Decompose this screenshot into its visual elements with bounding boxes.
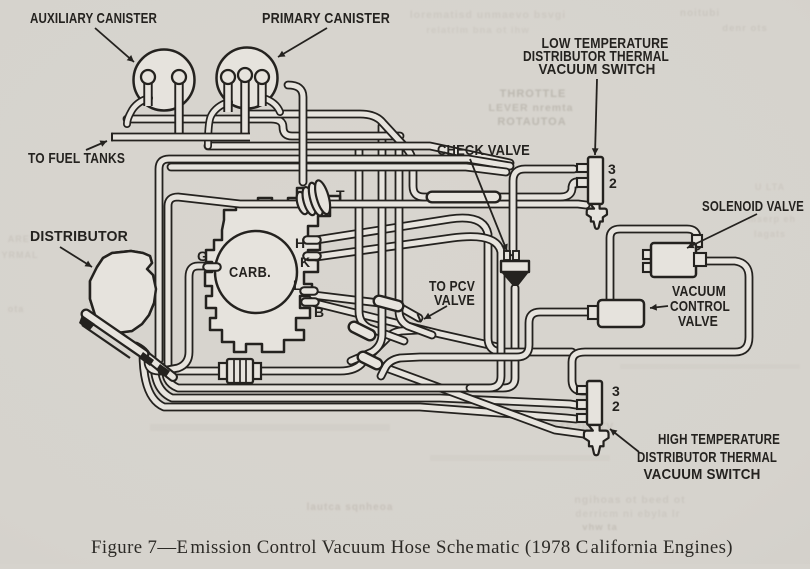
svg-text:HIGH TEMPERATURE: HIGH TEMPERATURE bbox=[658, 431, 780, 448]
svg-text:SOLENOID VALVE: SOLENOID VALVE bbox=[702, 198, 804, 215]
svg-text:VACUUM SWITCH: VACUUM SWITCH bbox=[539, 61, 656, 78]
svg-text:lagats: lagats bbox=[754, 229, 786, 239]
svg-text:lorematisd unmaevo bsvgi: lorematisd unmaevo bsvgi bbox=[410, 9, 566, 21]
svg-text:YRMAL: YRMAL bbox=[2, 250, 39, 260]
svg-text:CARB.: CARB. bbox=[229, 265, 271, 281]
svg-text:H: H bbox=[295, 235, 305, 251]
svg-text:DISTRIBUTOR THERMAL: DISTRIBUTOR THERMAL bbox=[637, 449, 777, 466]
svg-text:CHECK VALVE: CHECK VALVE bbox=[437, 142, 530, 159]
svg-text:ROTAUTOA: ROTAUTOA bbox=[497, 116, 566, 128]
svg-text:VALVE: VALVE bbox=[434, 292, 475, 309]
svg-text:vhw ta: vhw ta bbox=[582, 522, 618, 533]
svg-text:U LTA: U LTA bbox=[755, 182, 785, 192]
svg-text:PRIMARY CANISTER: PRIMARY CANISTER bbox=[262, 10, 390, 27]
svg-text:L: L bbox=[293, 277, 302, 293]
svg-text:2: 2 bbox=[612, 398, 620, 414]
svg-text:G: G bbox=[197, 248, 208, 264]
svg-text:DISTRIBUTOR: DISTRIBUTOR bbox=[30, 228, 128, 245]
svg-text:T: T bbox=[336, 187, 345, 203]
svg-text:noitubi: noitubi bbox=[680, 8, 720, 19]
svg-text:ngihoas ot beed ot: ngihoas ot beed ot bbox=[574, 494, 685, 506]
svg-text:VACUUM SWITCH: VACUUM SWITCH bbox=[644, 466, 761, 483]
svg-text:K: K bbox=[300, 254, 310, 270]
svg-text:relatrlm bna ot ihw: relatrlm bna ot ihw bbox=[426, 25, 529, 36]
svg-text:ota: ota bbox=[8, 304, 25, 314]
svg-text:THROTTLE: THROTTLE bbox=[500, 88, 567, 100]
svg-text:derricm ni ebyla lr: derricm ni ebyla lr bbox=[575, 509, 680, 520]
svg-text:2: 2 bbox=[609, 175, 617, 191]
svg-text:TO FUEL TANKS: TO FUEL TANKS bbox=[28, 150, 125, 167]
svg-text:AUXILIARY CANISTER: AUXILIARY CANISTER bbox=[30, 10, 157, 27]
svg-text:lautca sqnheoa: lautca sqnheoa bbox=[307, 502, 394, 513]
svg-text:3: 3 bbox=[612, 383, 620, 399]
svg-text:denr ots: denr ots bbox=[722, 23, 767, 34]
svg-text:VALVE: VALVE bbox=[678, 313, 718, 330]
svg-text:LEVER nremta: LEVER nremta bbox=[489, 102, 574, 114]
svg-text:B: B bbox=[314, 304, 324, 320]
svg-text:Figure 7—E mission Control Vac: Figure 7—E mission Control Vacuum Hose S… bbox=[91, 537, 733, 558]
